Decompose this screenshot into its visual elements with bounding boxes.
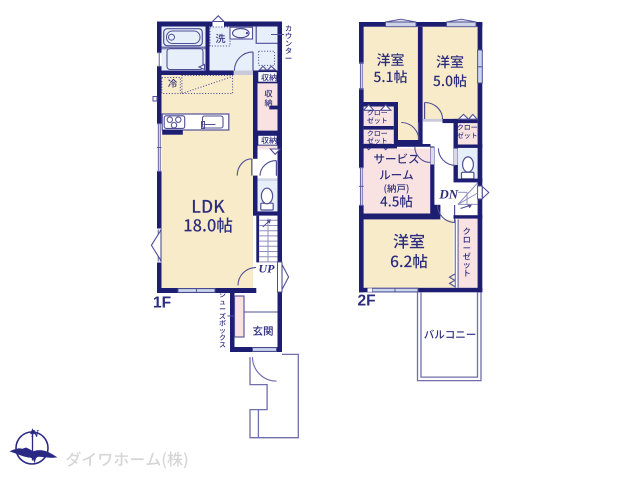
svg-text:DN: DN (438, 186, 458, 201)
svg-text:1F: 1F (153, 295, 171, 312)
svg-text:2F: 2F (357, 293, 375, 310)
svg-text:UP: UP (259, 262, 276, 276)
